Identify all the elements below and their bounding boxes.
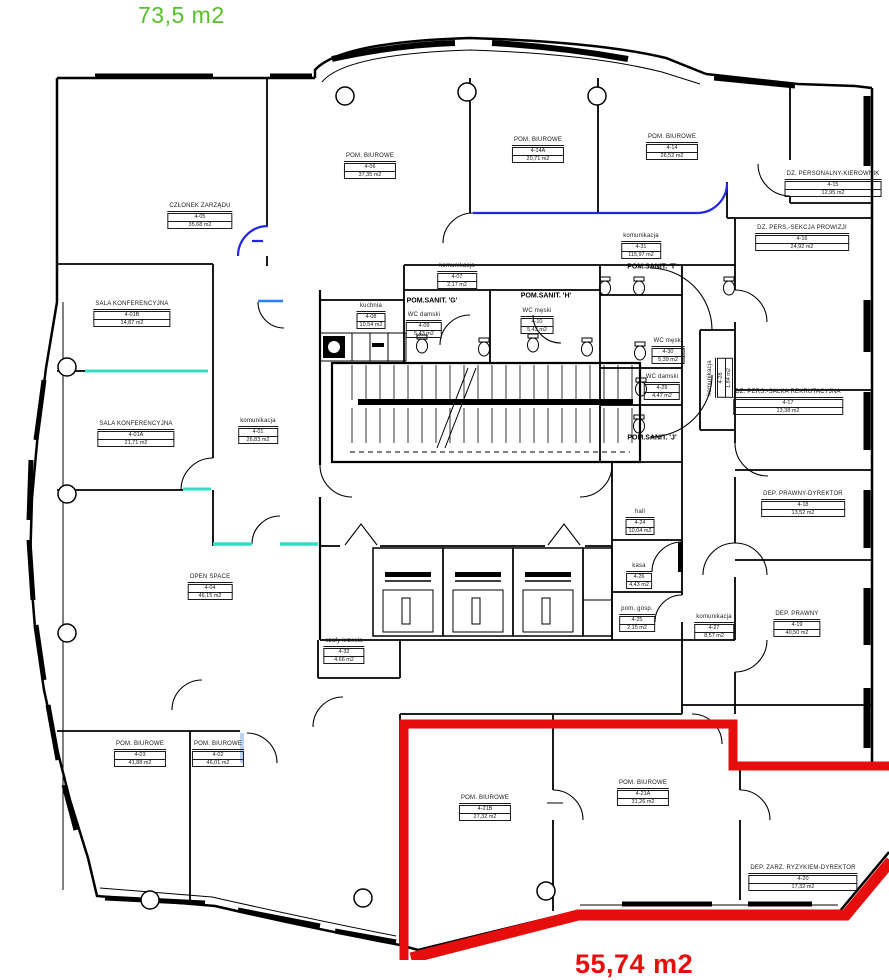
stairs — [350, 365, 633, 452]
room-area: 46,01 m2 — [192, 759, 244, 768]
room-area: 1,84 m2 — [725, 358, 734, 398]
red-highlight-outline — [404, 724, 889, 960]
sanitary-room-label: POM.SANIT. 'J' — [627, 435, 676, 442]
structural-columns — [58, 83, 606, 909]
room-label: OPEN SPACE4-0446,15 m2 — [188, 574, 233, 600]
room-area: 4,43 m2 — [626, 581, 652, 590]
room-label: WC męski4-105,43 m2 — [521, 308, 554, 334]
room-name: WC męski — [652, 338, 685, 347]
room-name: POM. BIUROWE — [192, 741, 244, 750]
toilet-tank-icon — [528, 334, 538, 338]
room-area: 13,38 m2 — [733, 407, 843, 416]
sanitary-room-label: POM.SANIT. 'T' — [627, 264, 677, 271]
room-name: WC damski — [644, 374, 680, 383]
room-label: DZ. PERSONALNY-KIEROWNIK4-1512,95 m2 — [785, 171, 882, 197]
room-area: 27,32 m2 — [459, 813, 511, 822]
room-area: 14,87 m2 — [93, 319, 170, 328]
room-area: 20,71 m2 — [512, 155, 564, 164]
room-name: pom. gosp. — [619, 606, 655, 615]
toilet-icon — [479, 342, 490, 356]
room-label: SALA KONFERENCYJNA4-01A21,71 m2 — [97, 421, 174, 447]
room-name: komunikacja — [707, 358, 716, 398]
room-name: WC męski — [521, 308, 554, 317]
room-name: DZ. PERS.-SEKCJA PROWIZJI — [755, 225, 849, 234]
room-area: 35,68 m2 — [167, 221, 232, 230]
room-area: 8,57 m2 — [694, 632, 734, 641]
room-label: POM. BIUROWE4-21B27,32 m2 — [459, 795, 511, 821]
room-label: POM. BIUROWE4-0341,88 m2 — [114, 741, 166, 767]
room-name: komunikacja — [238, 418, 278, 427]
room-area: 40,50 m2 — [773, 629, 820, 638]
room-label: kasa4-264,43 m2 — [626, 563, 652, 589]
room-name: kuchnia — [357, 303, 386, 312]
room-area: 115,97 m2 — [621, 251, 661, 260]
top-area-label: 73,5 m2 — [138, 2, 225, 29]
room-name: komunikacja — [437, 263, 477, 272]
room-label: pom. gosp.4-252,15 m2 — [619, 606, 655, 632]
toilet-icon — [600, 281, 611, 295]
room-name: POM. BIUROWE — [617, 780, 669, 789]
room-area: 26,52 m2 — [646, 152, 698, 161]
room-name: DEP. ZARZ. RYZYKIEM-DYREKTOR — [748, 865, 857, 874]
room-name: SALA KONFERENCYJNA — [97, 421, 174, 430]
floorplan-page: { "legend": { "top_area_text": "73,5 m2"… — [0, 0, 889, 960]
room-name: CZŁONEK ZARZĄDU — [167, 203, 232, 212]
room-name: OPEN SPACE — [188, 574, 233, 583]
room-area: 24,92 m2 — [755, 243, 849, 252]
room-area: 5,43 m2 — [406, 330, 442, 339]
room-label: DEP. PRAWNY-DYREKTOR4-1813,52 m2 — [761, 491, 845, 517]
windows-layer — [29, 43, 867, 942]
room-area: 37,35 m2 — [344, 171, 396, 180]
toilet-icon — [528, 338, 539, 352]
room-name: szafy krzesła — [323, 638, 364, 647]
room-label: komunikacja4-31115,97 m2 — [621, 233, 661, 259]
room-area: 4,66 m2 — [323, 656, 364, 665]
room-name: POM. BIUROWE — [459, 795, 511, 804]
room-area: 10,54 m2 — [357, 321, 386, 330]
room-area: 2,15 m2 — [619, 624, 655, 633]
room-name: komunikacja — [694, 614, 734, 623]
room-name: DZ. PERS.-SALKA REKRUTACYJNA — [733, 389, 843, 398]
toilet-icon — [634, 281, 645, 295]
room-name: POM. BIUROWE — [512, 137, 564, 146]
room-area: 10,04 m2 — [626, 527, 655, 536]
room-name: POM. BIUROWE — [114, 741, 166, 750]
toilet-tank-icon — [600, 277, 610, 281]
room-area: 31,26 m2 — [617, 798, 669, 807]
toilet-tank-icon — [479, 338, 489, 342]
toilet-icon — [724, 281, 735, 295]
room-label: szafy krzesła4-324,66 m2 — [323, 638, 364, 664]
room-area: 4,47 m2 — [644, 392, 680, 401]
room-label: DZ. PERS.-SALKA REKRUTACYJNA4-1713,38 m2 — [733, 389, 843, 415]
room-label: POM. BIUROWE4-14A20,71 m2 — [512, 137, 564, 163]
room-name: SALA KONFERENCYJNA — [93, 301, 170, 310]
room-label: DEP. PRAWNY4-1940,50 m2 — [773, 611, 820, 637]
room-area: 26,83 m2 — [238, 436, 278, 445]
room-label: komunikacja4-281,84 m2 — [707, 358, 733, 398]
room-label: SALA KONFERENCYJNA4-01B14,87 m2 — [93, 301, 170, 327]
room-area: 17,32 m2 — [748, 883, 857, 892]
toilet-tank-icon — [582, 338, 592, 342]
sanitary-room-label: POM.SANIT. 'G' — [407, 298, 458, 305]
toilet-icon — [582, 342, 593, 356]
room-name: DEP. PRAWNY-DYREKTOR — [761, 491, 845, 500]
room-label: kuchnia4-0810,54 m2 — [357, 303, 386, 329]
room-label: POM. BIUROWE4-0246,01 m2 — [192, 741, 244, 767]
room-area: 41,88 m2 — [114, 759, 166, 768]
room-name: WC damski — [406, 312, 442, 321]
room-label: DEP. ZARZ. RYZYKIEM-DYREKTOR4-2017,32 m2 — [748, 865, 857, 891]
room-label: DZ. PERS.-SEKCJA PROWIZJI4-1624,92 m2 — [755, 225, 849, 251]
bottom-area-label: 55,74 m2 — [575, 949, 693, 980]
kitchen-counter — [320, 333, 406, 361]
room-area: 13,52 m2 — [761, 509, 845, 518]
room-name: DZ. PERSONALNY-KIEROWNIK — [785, 171, 882, 180]
room-name: komunikacja — [621, 233, 661, 242]
room-area: 21,71 m2 — [97, 439, 174, 448]
room-name: hall — [626, 509, 655, 518]
room-name: kasa — [626, 563, 652, 572]
elevator-cars — [383, 572, 573, 632]
room-label: POM. BIUROWE4-21A31,26 m2 — [617, 780, 669, 806]
toilet-icon — [635, 346, 646, 360]
room-label: komunikacja4-072,17 m2 — [437, 263, 477, 289]
room-area: 2,17 m2 — [437, 281, 477, 290]
room-label: hall4-2410,04 m2 — [626, 509, 655, 535]
room-area: 46,15 m2 — [188, 592, 233, 601]
toilet-icon — [417, 339, 428, 353]
room-area: 12,95 m2 — [785, 189, 882, 198]
room-name: DEP. PRAWNY — [773, 611, 820, 620]
floorplan-svg — [0, 0, 889, 960]
room-name: POM. BIUROWE — [344, 153, 396, 162]
sanitary-room-label: POM.SANIT. 'H' — [521, 293, 571, 300]
room-label: WC damski4-095,43 m2 — [406, 312, 442, 338]
room-area: 5,39 m2 — [652, 356, 685, 365]
toilet-tank-icon — [635, 342, 645, 346]
room-label: komunikacja4-278,57 m2 — [694, 614, 734, 640]
room-label: POM. BIUROWE4-1426,52 m2 — [646, 134, 698, 160]
room-label: komunikacja4-0126,83 m2 — [238, 418, 278, 444]
room-label: WC męski4-305,39 m2 — [652, 338, 685, 364]
toilet-tank-icon — [724, 277, 734, 281]
toilet-tank-icon — [634, 277, 644, 281]
room-area: 5,43 m2 — [521, 326, 554, 335]
room-label: POM. BIUROWE4-0637,35 m2 — [344, 153, 396, 179]
room-name: POM. BIUROWE — [646, 134, 698, 143]
room-label: CZŁONEK ZARZĄDU4-0535,68 m2 — [167, 203, 232, 229]
room-label: WC damski4-294,47 m2 — [644, 374, 680, 400]
